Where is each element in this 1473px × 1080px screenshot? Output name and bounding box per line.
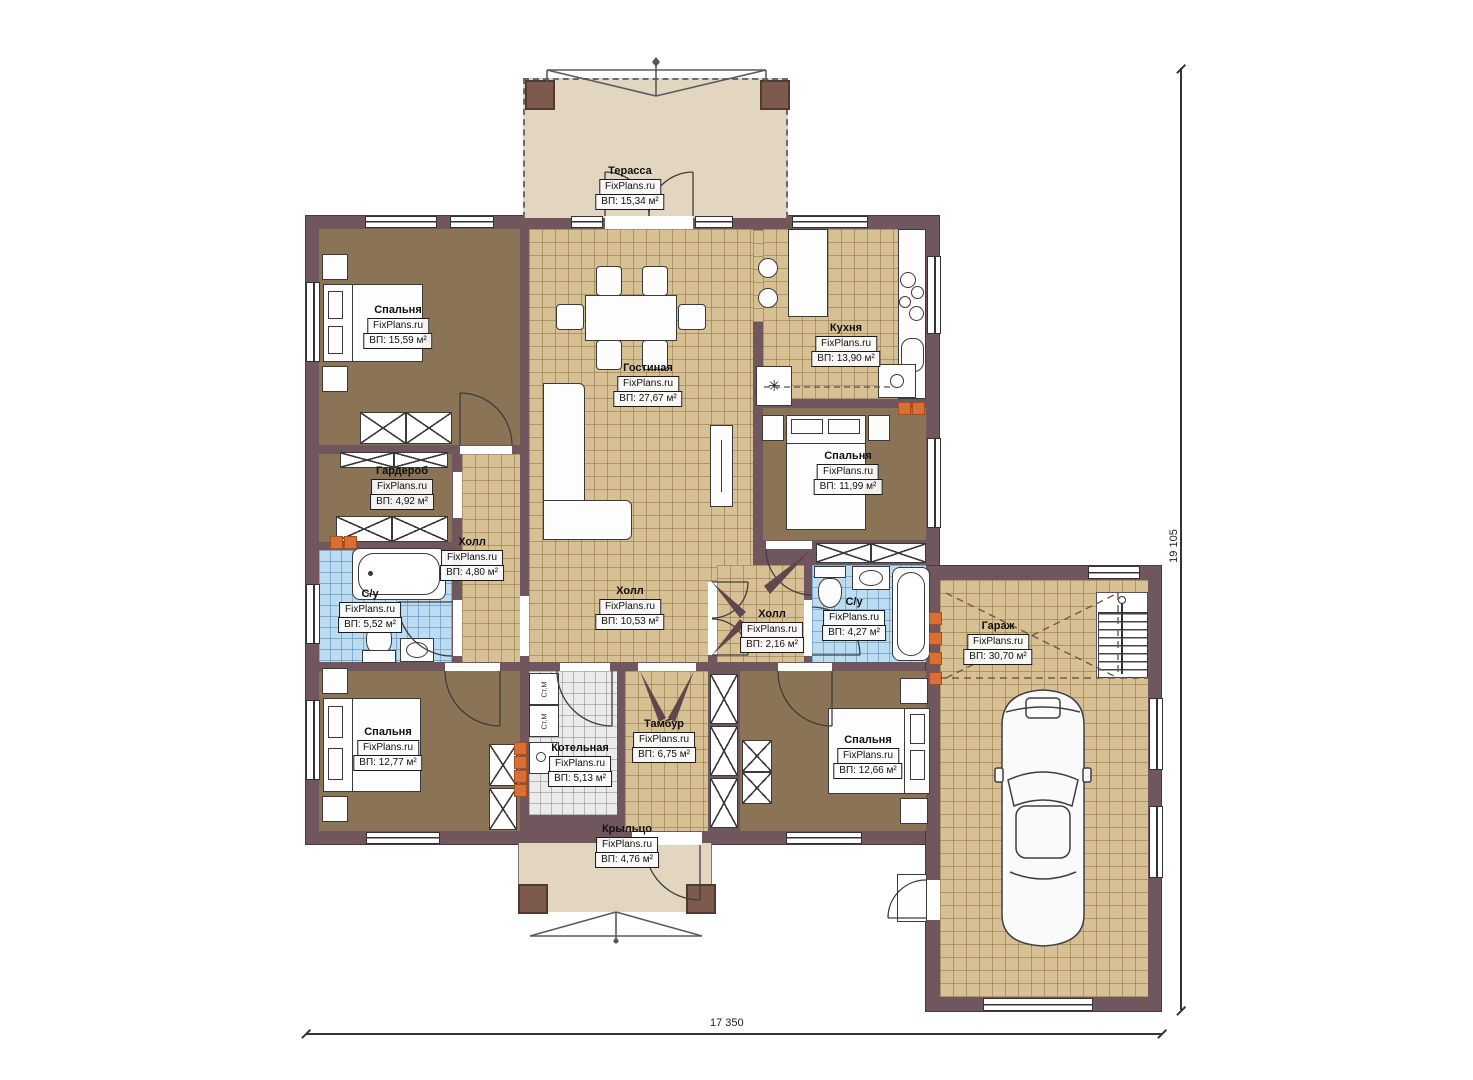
room-label-hall-center: Холл FixPlans.ru ВП: 10,53 м² xyxy=(595,585,664,630)
room-label-wardrobe: Гардероб FixPlans.ru ВП: 4,92 м² xyxy=(370,465,434,510)
room-label-boiler: Котельная FixPlans.ru ВП: 5,13 м² xyxy=(548,742,612,787)
car-top-view xyxy=(995,690,1091,946)
room-label-bedroom-bl: Спальня FixPlans.ru ВП: 12,77 м² xyxy=(353,726,422,771)
terrace-roof-lines xyxy=(547,62,766,96)
watermark: FixPlans.ru xyxy=(815,336,877,352)
dimension-line-bottom xyxy=(306,1033,1162,1035)
room-label-porch: Крыльцо FixPlans.ru ВП: 4,76 м² xyxy=(595,823,659,868)
floor-plan-canvas: ✳ Ст.М Ст.М xyxy=(0,0,1473,1080)
watermark: FixPlans.ru xyxy=(967,634,1029,650)
room-label-terrace: Терасса FixPlans.ru ВП: 15,34 м² xyxy=(595,165,664,210)
watermark: FixPlans.ru xyxy=(741,622,803,638)
watermark: FixPlans.ru xyxy=(596,837,658,853)
watermark: FixPlans.ru xyxy=(371,479,433,495)
room-label-hall-right: Холл FixPlans.ru ВП: 2,16 м² xyxy=(740,608,804,653)
decor-lines xyxy=(0,0,1473,1080)
watermark: FixPlans.ru xyxy=(357,740,419,756)
watermark: FixPlans.ru xyxy=(367,318,429,334)
watermark: FixPlans.ru xyxy=(823,610,885,626)
dimension-line-right xyxy=(1180,68,1182,1010)
room-label-bedroom-tl: Спальня FixPlans.ru ВП: 15,59 м² xyxy=(363,304,432,349)
watermark: FixPlans.ru xyxy=(599,599,661,615)
dimension-bottom-label: 17 350 xyxy=(710,1017,744,1029)
watermark: FixPlans.ru xyxy=(837,748,899,764)
room-label-hall-small: Холл FixPlans.ru ВП: 4,80 м² xyxy=(440,536,504,581)
room-label-garage: Гараж FixPlans.ru ВП: 30,70 м² xyxy=(963,620,1032,665)
porch-roof-lines xyxy=(530,912,702,940)
room-label-kitchen: Кухня FixPlans.ru ВП: 13,90 м² xyxy=(811,322,880,367)
room-label-living: Гостиная FixPlans.ru ВП: 27,67 м² xyxy=(613,362,682,407)
dimension-right-label: 19 105 xyxy=(1168,524,1180,568)
room-label-tambour: Тамбур FixPlans.ru ВП: 6,75 м² xyxy=(632,718,696,763)
room-label-bath-right: С/у FixPlans.ru ВП: 4,27 м² xyxy=(822,596,886,641)
watermark: FixPlans.ru xyxy=(633,732,695,748)
terrace-roof-apex xyxy=(652,57,660,67)
room-label-bedroom-r: Спальня FixPlans.ru ВП: 11,99 м² xyxy=(814,450,883,495)
watermark: FixPlans.ru xyxy=(441,550,503,566)
watermark: FixPlans.ru xyxy=(339,602,401,618)
porch-roof-apex xyxy=(614,939,619,944)
watermark: FixPlans.ru xyxy=(549,756,611,772)
watermark: FixPlans.ru xyxy=(817,464,879,480)
room-label-bedroom-br: Спальня FixPlans.ru ВП: 12,66 м² xyxy=(833,734,902,779)
watermark: FixPlans.ru xyxy=(617,376,679,392)
room-label-bath-left: С/у FixPlans.ru ВП: 5,52 м² xyxy=(338,588,402,633)
watermark: FixPlans.ru xyxy=(599,179,661,195)
